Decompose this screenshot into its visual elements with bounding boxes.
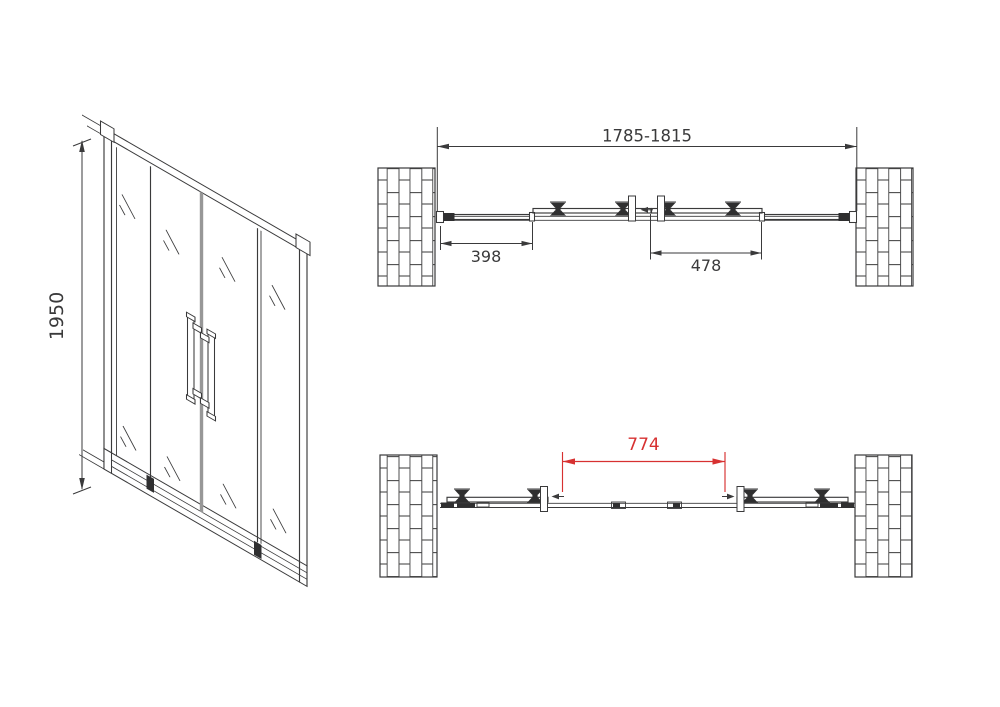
glass-panels	[117, 143, 287, 573]
height-dim-label: 1950	[46, 292, 68, 340]
roller-icon	[454, 489, 470, 503]
roller-icon	[814, 489, 830, 503]
handle-tab-icon	[658, 196, 665, 221]
top-view-closed: 1785-1815	[378, 127, 913, 287]
frame-cap-left	[101, 121, 115, 142]
brick-wall-right	[855, 455, 912, 577]
wall-corner-lines	[79, 113, 104, 469]
fixed-panel-dim-label: 398	[471, 247, 502, 266]
door-perspective	[79, 109, 310, 589]
frame-cap-right	[296, 234, 310, 256]
bottom-rail	[104, 449, 307, 587]
opening-dimension: 774	[563, 435, 726, 492]
handle-left-icon	[187, 312, 202, 408]
fixed-panel-left	[441, 215, 533, 220]
overall-width-label: 1785-1815	[602, 127, 692, 146]
sliding-panel-dimension: 478	[651, 214, 762, 275]
handle-tab-icon	[737, 487, 744, 512]
brick-wall-left	[380, 455, 437, 577]
wall-bracket-left	[437, 212, 455, 223]
drawing-canvas: 1950	[0, 0, 1000, 707]
technical-drawing-page: 1950	[0, 0, 1000, 707]
door-frame	[101, 121, 311, 588]
height-dimension: 1950	[46, 139, 91, 494]
bottom-view-open: 774	[380, 435, 912, 577]
fixed-panel-dimension: 398	[441, 222, 533, 266]
wall-bracket-right	[839, 212, 857, 223]
front-view: 1950	[46, 109, 310, 589]
opening-dim-label: 774	[627, 435, 659, 455]
brick-wall-right	[856, 168, 913, 286]
handle-tab-icon	[541, 487, 548, 512]
sliding-panel-dim-label: 478	[691, 256, 722, 275]
track-closed	[437, 196, 857, 223]
slide-arrow-icon	[722, 494, 735, 500]
overall-width-dimension: 1785-1815	[437, 127, 857, 214]
track-open	[440, 487, 855, 512]
slide-arrow-icon	[552, 494, 565, 500]
brick-wall-left	[378, 168, 435, 286]
handle-tab-icon	[629, 196, 636, 221]
